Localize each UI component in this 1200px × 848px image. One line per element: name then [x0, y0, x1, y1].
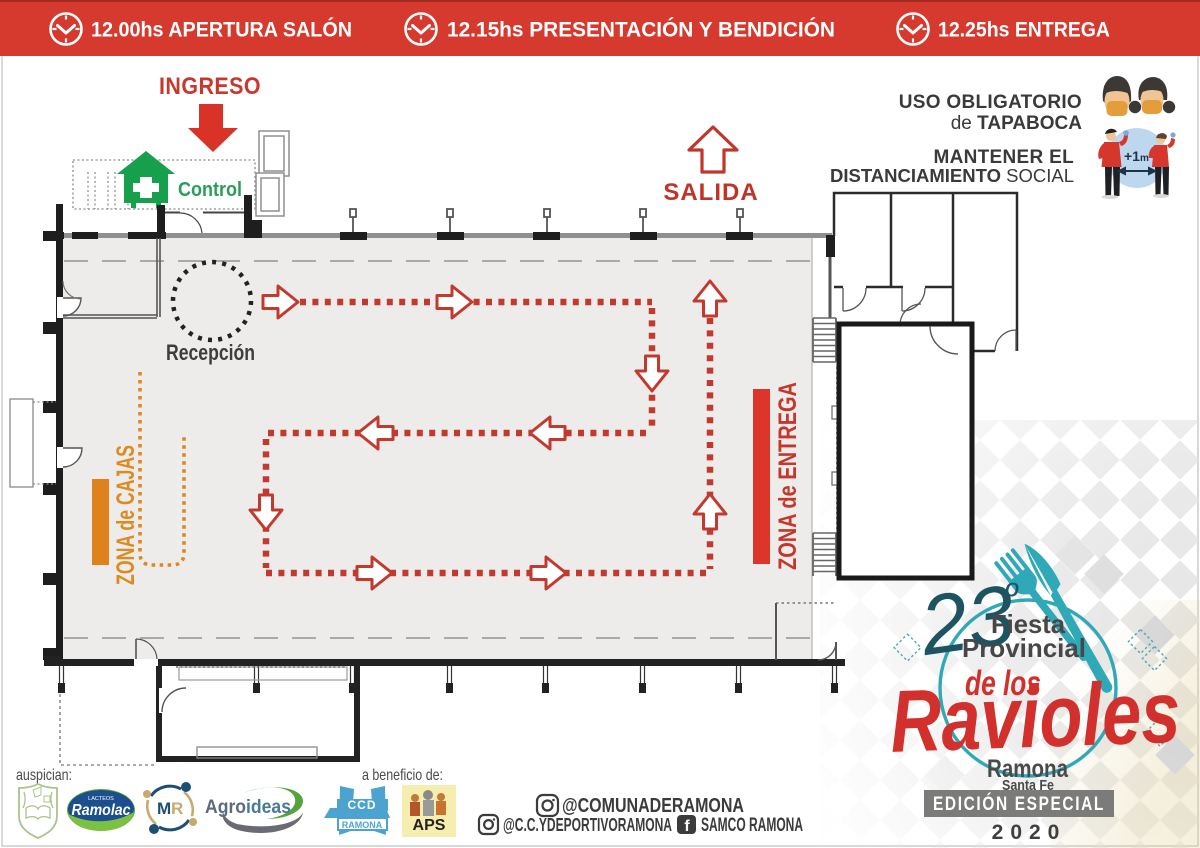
svg-text:USO OBLIGATORIO: USO OBLIGATORIO — [899, 92, 1082, 113]
svg-text:Control: Control — [178, 179, 242, 201]
svg-text:f: f — [684, 818, 690, 835]
svg-text:12.25hs ENTREGA: 12.25hs ENTREGA — [938, 19, 1110, 42]
svg-text:12.15hs PRESENTACIÓN Y BENDICI: 12.15hs PRESENTACIÓN Y BENDICIÓN — [447, 18, 835, 42]
svg-text:Ramolac: Ramolac — [72, 802, 131, 819]
svg-text:CCD: CCD — [348, 798, 377, 812]
svg-text:SALIDA: SALIDA — [663, 179, 758, 206]
svg-text:SAMCO RAMONA: SAMCO RAMONA — [701, 815, 803, 836]
svg-text:R: R — [171, 799, 183, 818]
svg-text:@COMUNADERAMONA: @COMUNADERAMONA — [562, 795, 744, 817]
svg-text:12.00hs APERTURA SALÓN: 12.00hs APERTURA SALÓN — [91, 18, 352, 42]
svg-text:M: M — [157, 799, 171, 818]
svg-text:ZONA de CAJAS: ZONA de CAJAS — [112, 445, 140, 585]
svg-text:ZONA de ENTREGA: ZONA de ENTREGA — [774, 382, 802, 570]
svg-text:RAMONA: RAMONA — [342, 820, 383, 830]
svg-text:@C.C.YDEPORTIVORAMONA: @C.C.YDEPORTIVORAMONA — [503, 815, 672, 835]
svg-text:Recepción: Recepción — [166, 340, 255, 365]
svg-text:LACTEOS: LACTEOS — [88, 796, 114, 802]
svg-text:INGRESO: INGRESO — [159, 73, 261, 100]
svg-text:Agroideas: Agroideas — [205, 797, 291, 818]
svg-text:DISTANCIAMIENTO SOCIAL: DISTANCIAMIENTO SOCIAL — [830, 165, 1074, 186]
svg-text:auspician:: auspician: — [16, 767, 72, 784]
svg-text:EDICIÓN ESPECIAL: EDICIÓN ESPECIAL — [933, 793, 1105, 815]
svg-text:2020: 2020 — [992, 821, 1067, 844]
svg-text:a beneficio de:: a beneficio de: — [362, 767, 443, 784]
svg-text:Provincial: Provincial — [962, 633, 1086, 663]
svg-text:de TAPABOCA: de TAPABOCA — [951, 113, 1083, 134]
svg-text:APS: APS — [413, 817, 446, 834]
